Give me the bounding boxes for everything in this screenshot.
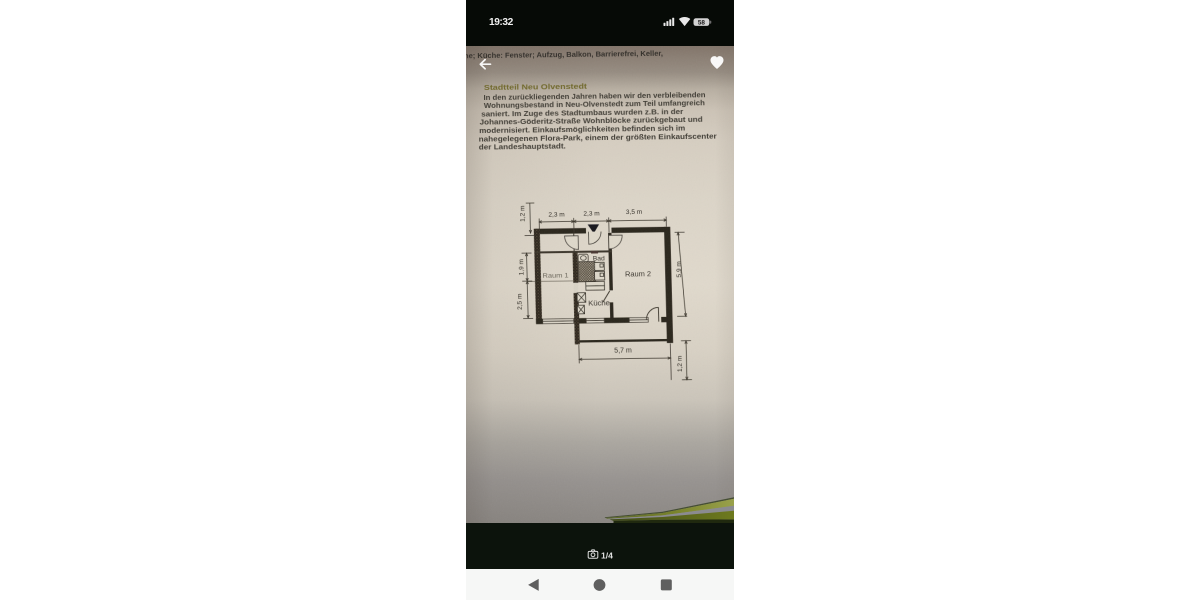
svg-text:19:32: 19:32 [489, 17, 514, 28]
svg-text:1/4: 1/4 [601, 550, 613, 560]
svg-text:58: 58 [697, 19, 705, 26]
